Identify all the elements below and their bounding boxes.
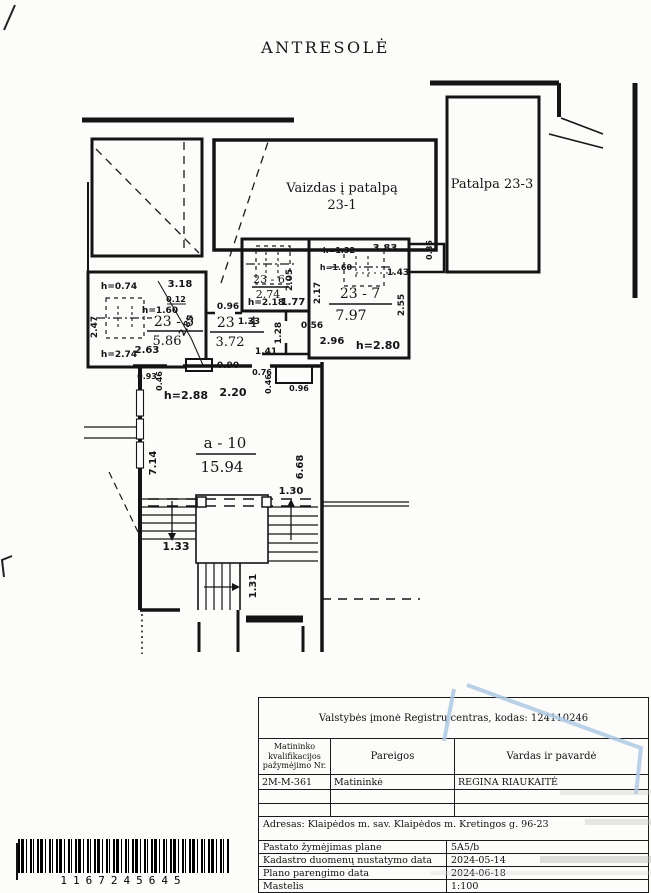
surveyor-name: REGINA RIAUKAITĖ (455, 775, 648, 789)
dim-141: 1.41 (255, 347, 277, 357)
dim-131: 1.31 (248, 574, 259, 599)
header-surveyor-certificate: Matininko kvalifikacijos pažymėjimo Nr. (259, 739, 331, 774)
dim-205: 2.05 (285, 269, 295, 291)
dim-086: 0.86 (425, 240, 434, 260)
dim-128: 1.28 (274, 322, 284, 344)
surveyor-position: Matininkė (331, 775, 455, 789)
empty-row (259, 803, 648, 816)
dim-133-a: 1.33 (238, 317, 260, 327)
table-row: Plano parengimo data 2024-06-18 (259, 866, 648, 879)
dim-h280: h=2.80 (356, 339, 401, 352)
building-marking-value: 5A5/b (447, 841, 648, 853)
plan-date-value: 2024-06-18 (447, 867, 648, 879)
dim-h160-a: h=1.60 (142, 306, 178, 316)
dim-714: 7.14 (148, 451, 159, 476)
room-view-label-line2: 23-1 (327, 198, 356, 213)
dim-h288: h=2.88 (164, 389, 208, 402)
dim-143: 1.43 (387, 268, 409, 278)
dim-096-a: 0.96 (217, 302, 239, 312)
room-a10-area: 15.94 (201, 458, 244, 476)
room-view-label-line1: Vaizdas į patalpą (285, 181, 398, 196)
dim-133-b: 1.33 (162, 540, 189, 553)
dim-h132: h=1.32 (323, 246, 355, 255)
room-23-7-area: 7.97 (335, 308, 366, 324)
cadastre-date-label: Kadastro duomenų nustatymo data (259, 854, 447, 866)
floor-plan-drawing: Vaizdas į patalpą 23-1 Patalpa 23-3 23 -… (0, 0, 651, 690)
cadastre-date-value: 2024-05-14 (447, 854, 648, 866)
dim-318: 3.18 (168, 279, 193, 290)
registry-org-line: Valstybės įmonė Registrų centras, kodas:… (259, 713, 648, 724)
dim-296: 2.96 (320, 336, 345, 347)
dim-090: 0.90 (217, 361, 239, 371)
barcode: 1167245645 (18, 839, 229, 887)
dim-220: 2.20 (219, 386, 246, 399)
table-row: Pastato žymėjimas plane 5A5/b (259, 840, 648, 853)
scan-tick-marks (2, 5, 15, 577)
room-23-6-number: 23 - 6 (253, 273, 285, 286)
dim-046-b: 0.46 (264, 374, 273, 394)
dim-h074: h=0.74 (101, 282, 137, 292)
table-row: Mastelis 1:100 (259, 879, 648, 892)
scale-value: 1:100 (447, 880, 648, 892)
building-marking-label: Pastato žymėjimas plane (259, 841, 447, 853)
room-23-3-label: Patalpa 23-3 (451, 177, 533, 192)
room-a10-number: a - 10 (204, 434, 247, 452)
address-line: Adresas: Klaipėdos m. sav. Klaipėdos m. … (259, 817, 648, 840)
header-position: Pareigos (331, 739, 455, 774)
header-name-surname: Vardas ir pavardė (455, 739, 648, 774)
barcode-number: 1167245645 (18, 874, 229, 887)
dim-255: 2.55 (397, 294, 407, 316)
plan-date-label: Plano parengimo data (259, 867, 447, 879)
dim-263: 2.63 (135, 345, 160, 356)
dim-046-a: 0.46 (155, 371, 164, 391)
dim-217: 2.17 (313, 282, 323, 304)
dim-177: 1.77 (281, 297, 306, 308)
dim-h274: h=2.74 (101, 350, 137, 360)
surveyor-certificate-nr: 2M-M-361 (259, 775, 331, 789)
dim-h218: h=2.18 (248, 298, 284, 308)
surveyor-row: 2M-M-361 Matininkė REGINA RIAUKAITĖ (259, 774, 648, 789)
dim-h160-b: h=1.60 (320, 263, 353, 272)
scale-label: Mastelis (259, 880, 447, 892)
empty-row (259, 789, 648, 803)
room-labels: Vaizdas į patalpą 23-1 Patalpa 23-3 23 -… (153, 177, 534, 476)
room-23-4-area: 3.72 (216, 335, 245, 350)
barcode-bars (18, 839, 229, 873)
dim-130: 1.30 (279, 486, 304, 497)
wall-lines (82, 83, 635, 654)
table-row: Kadastro duomenų nustatymo data 2024-05-… (259, 853, 648, 866)
dim-056: 0.56 (301, 321, 323, 331)
dim-383: 3.83 (373, 243, 398, 254)
registry-table: Valstybės įmonė Registrų centras, kodas:… (258, 697, 649, 893)
dim-096-b: 0.96 (289, 384, 309, 393)
dim-247: 2.47 (90, 316, 100, 338)
room-23-7-number: 23 - 7 (340, 286, 380, 302)
dim-668: 6.68 (295, 455, 306, 480)
scanned-floor-plan-page: ANTRESOLĖ (0, 0, 651, 885)
dim-012: 0.12 (166, 295, 186, 304)
dim-093: 0.93 (137, 372, 157, 381)
